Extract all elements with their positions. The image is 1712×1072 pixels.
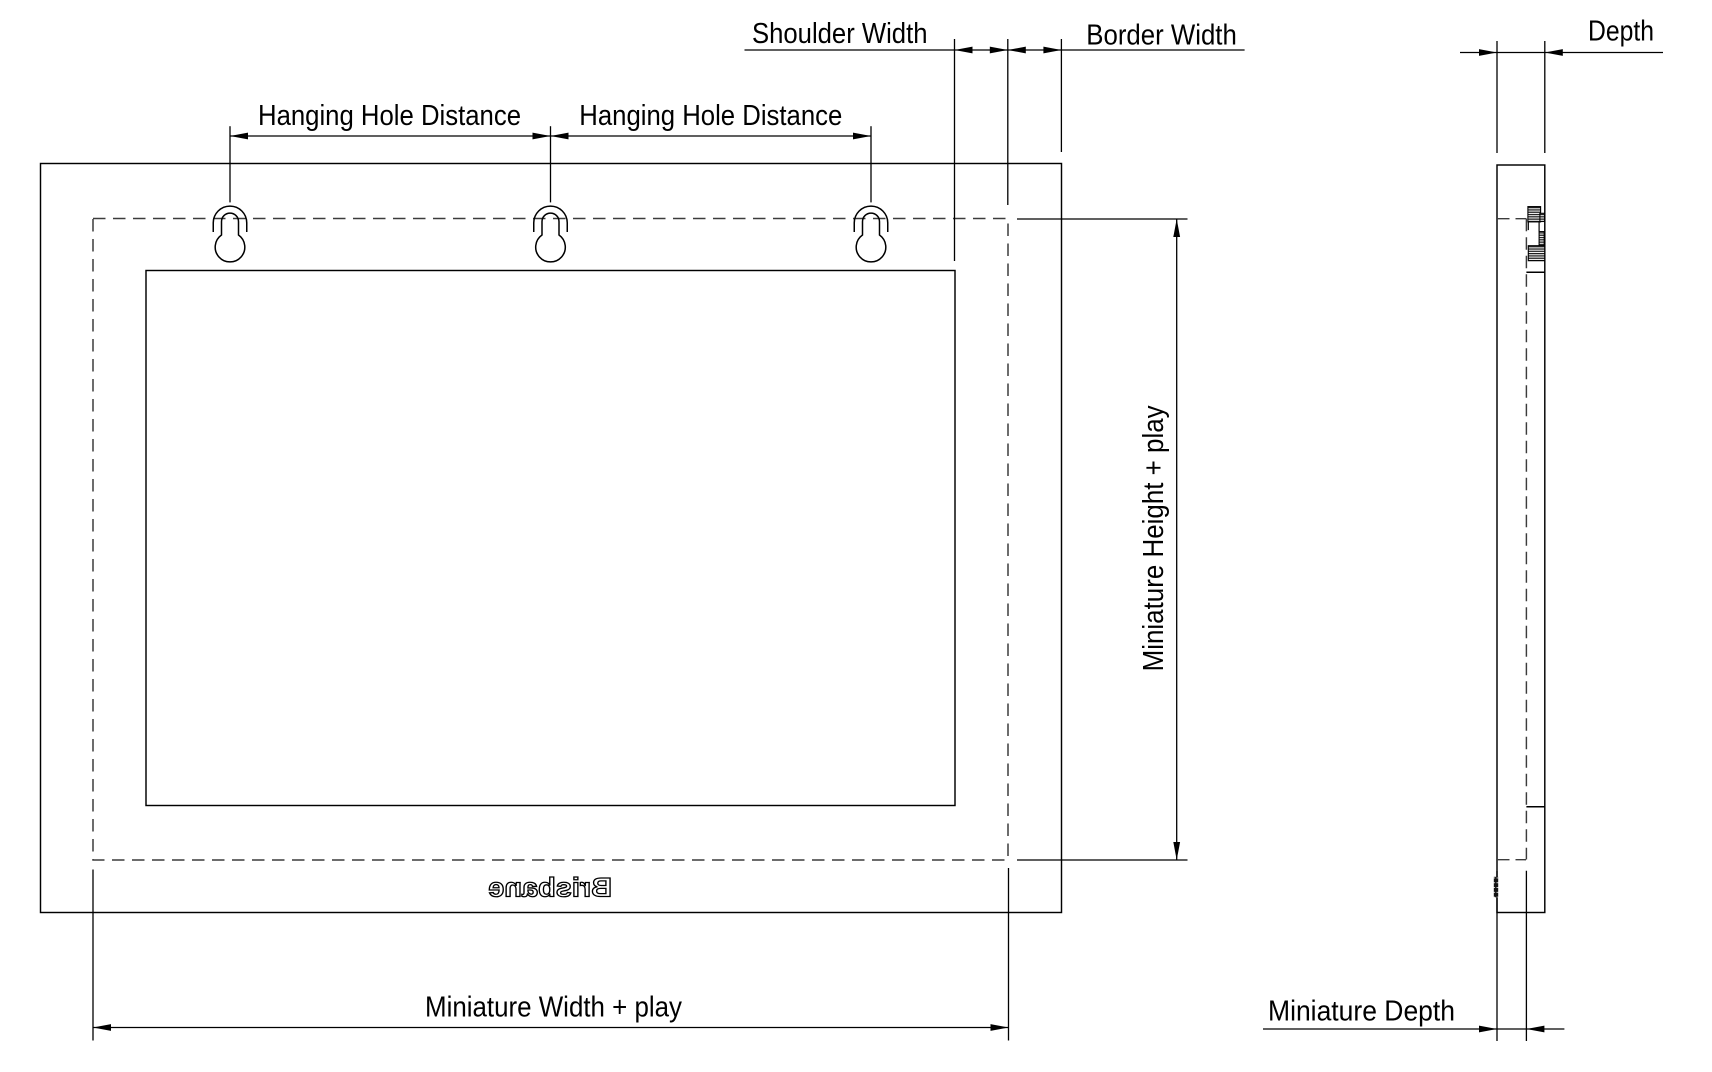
svg-text:Miniature Depth: Miniature Depth <box>1268 996 1455 1028</box>
svg-text:Hanging Hole Distance: Hanging Hole Distance <box>258 100 521 132</box>
svg-text:Miniature Width + play: Miniature Width + play <box>425 992 683 1024</box>
svg-text:Depth: Depth <box>1588 16 1654 48</box>
svg-text:Brisbane: Brisbane <box>488 873 612 903</box>
svg-text:Border Width: Border Width <box>1086 20 1237 52</box>
svg-text:Hanging Hole Distance: Hanging Hole Distance <box>579 100 842 132</box>
svg-text:Miniature Height + play: Miniature Height + play <box>1138 405 1170 672</box>
svg-text:Shoulder Width: Shoulder Width <box>752 18 928 50</box>
